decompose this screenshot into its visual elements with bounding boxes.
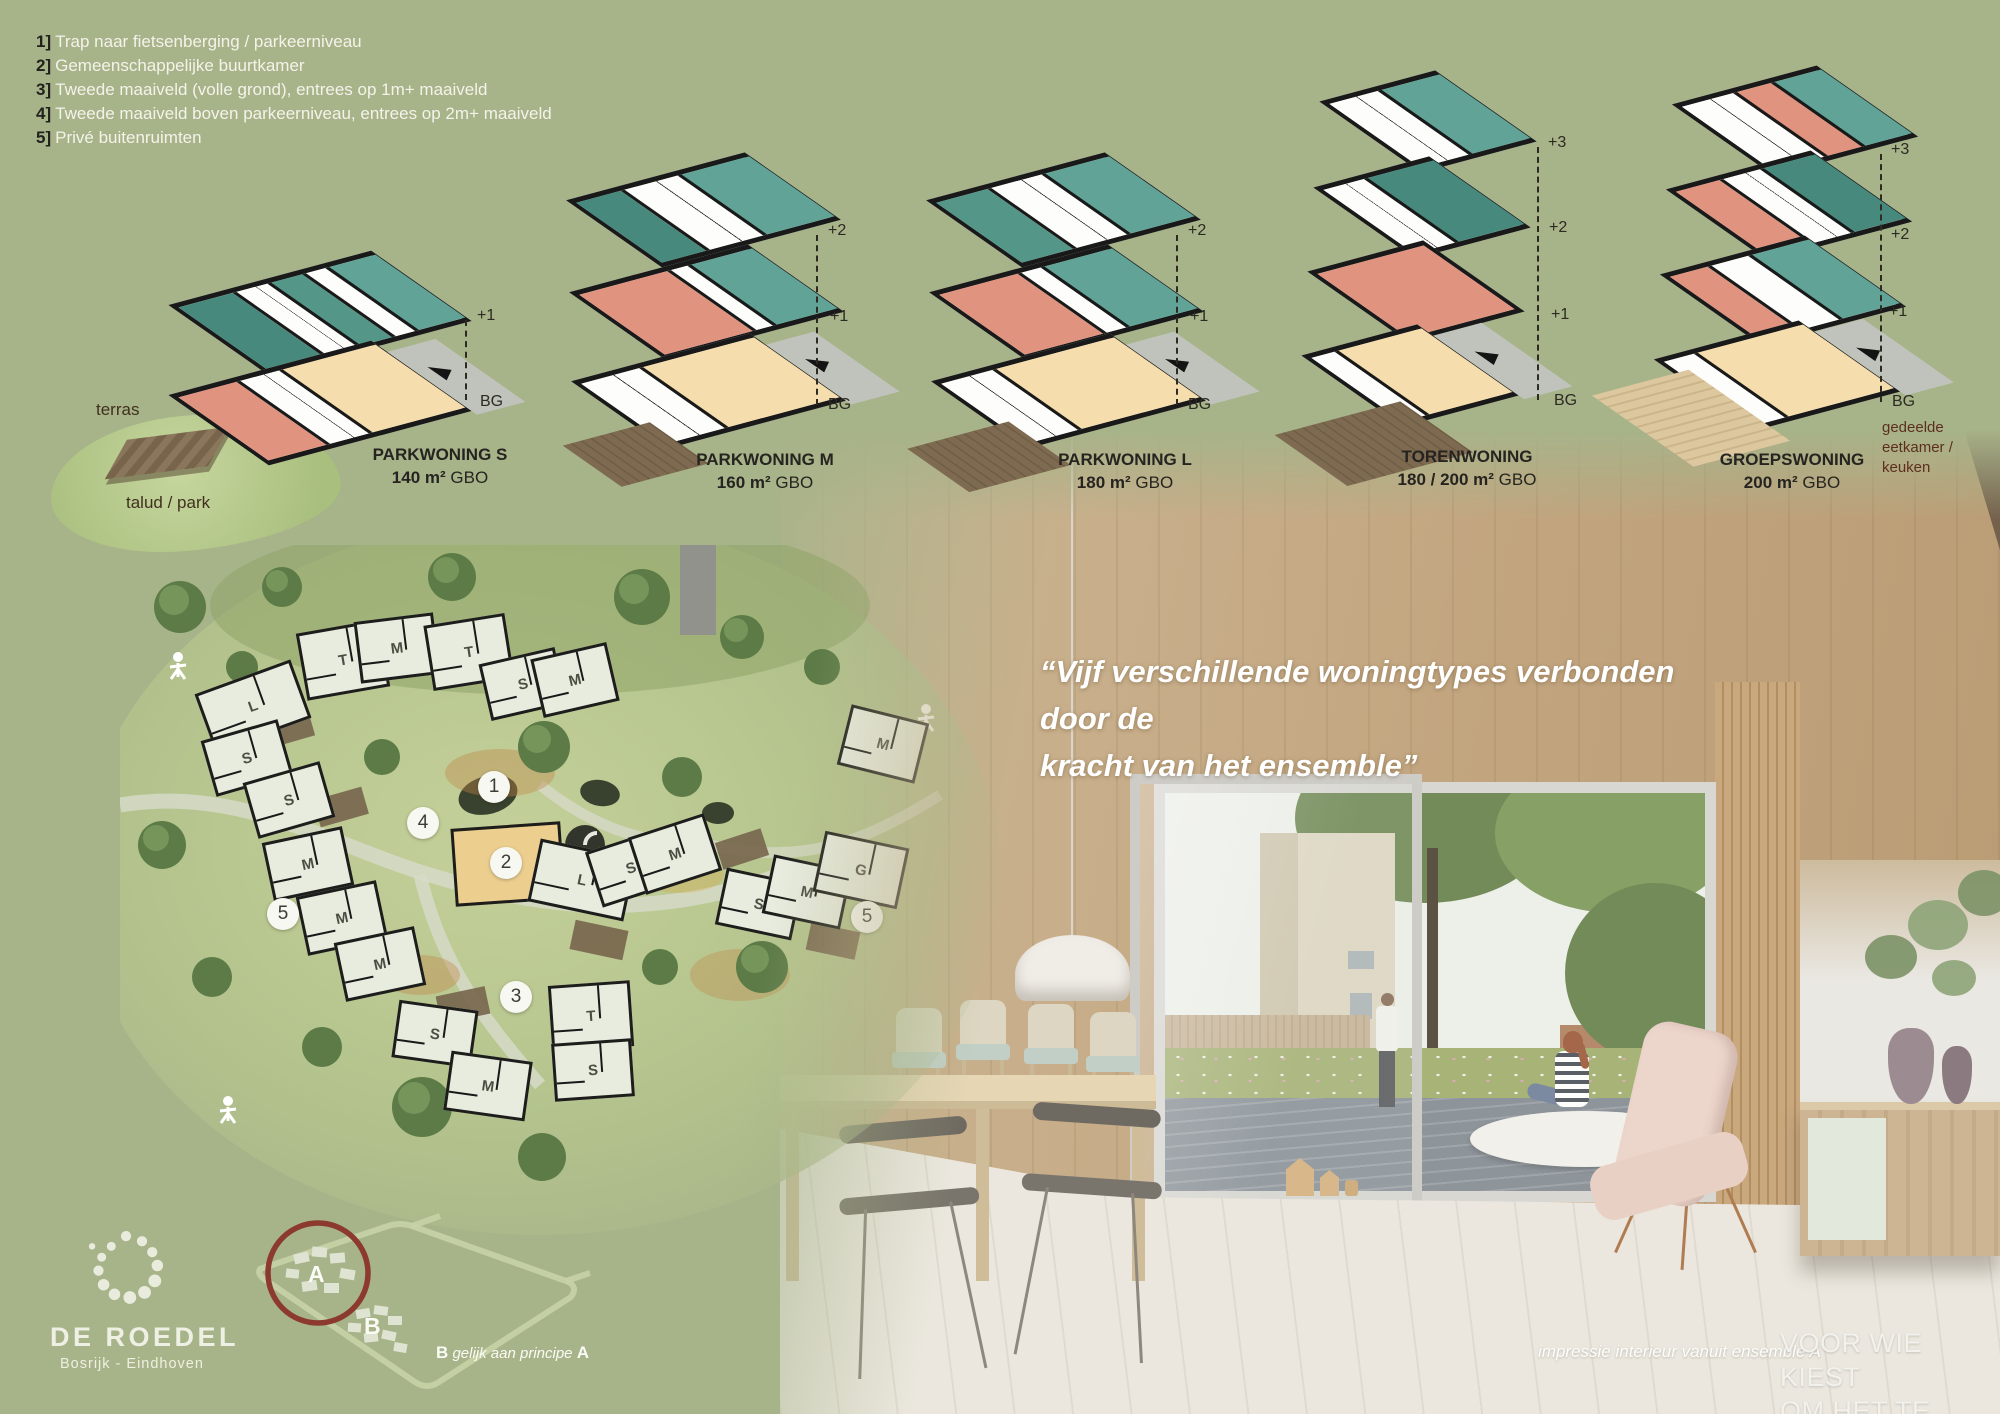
sideboard-door	[1808, 1118, 1886, 1240]
chair-back	[1090, 1012, 1136, 1062]
diagram-torenwoning: +3 +2 +1 BG TORENWONING 180 / 200 m² GBO	[1245, 55, 1640, 505]
site-marker: 5	[851, 901, 883, 933]
legend-number: 4]	[36, 104, 51, 123]
level-label: BG	[480, 393, 503, 411]
level-label: BG	[1892, 393, 1915, 411]
type-name: GROEPSWONING	[1720, 450, 1865, 469]
legend-text: Privé buitenruimten	[55, 128, 201, 147]
legend-text: Gemeenschappelijke buurtkamer	[55, 56, 304, 75]
level-label: +2	[1549, 219, 1567, 237]
legend-text: Tweede maaiveld (volle grond), entrees o…	[55, 80, 487, 99]
diagram-label: TORENWONING 180 / 200 m² GBO	[1357, 445, 1577, 491]
type-area: 180 m²	[1077, 473, 1131, 492]
chair-leg	[1131, 1193, 1143, 1363]
level-label: BG	[1188, 396, 1211, 414]
type-name: PARKWONING	[373, 445, 492, 464]
site-marker: 1	[478, 771, 510, 803]
chair-seat	[1021, 1173, 1162, 1200]
type-area: 160 m²	[717, 473, 771, 492]
quote-line: kracht van het ensemble”	[1040, 742, 1740, 789]
diagram-label: PARKWONING S 140 m² GBO	[340, 443, 540, 489]
area-unit: GBO	[1802, 473, 1840, 492]
legend-text: Trap naar fietsenberging / parkeerniveau	[55, 32, 362, 51]
area-unit: GBO	[1499, 470, 1537, 489]
diagram-parkwoning-s: +1 BG terras talud / park PARKWONING S 1…	[40, 185, 540, 560]
floorplate-plus2	[566, 152, 841, 267]
level-line	[465, 320, 467, 400]
legend-number: 5]	[36, 128, 51, 147]
diagram-label: GROEPSWONING 200 m² GBO	[1682, 448, 1902, 494]
legend-item: 1]Trap naar fietsenberging / parkeernive…	[36, 30, 552, 54]
level-line	[816, 235, 818, 405]
tagline-line: VOOR WIE KIEST	[1780, 1326, 2000, 1394]
floorplate-plus2	[926, 152, 1201, 267]
tagline-line: OM HET TE DOEN.	[1780, 1394, 2000, 1414]
legend-number: 3]	[36, 80, 51, 99]
type-size: L	[1182, 450, 1192, 469]
legend-number: 2]	[36, 56, 51, 75]
site-marker: 4	[407, 807, 439, 839]
level-label: +2	[1188, 222, 1206, 240]
area-unit: GBO	[450, 468, 488, 487]
diagram-groepswoning: +3 +2 +1 BG gedeelde eetkamer / keuken G…	[1630, 50, 2000, 515]
quote: “Vijf verschillende woningtypes verbonde…	[1040, 648, 1740, 789]
quote-line: “Vijf verschillende woningtypes verbonde…	[1040, 648, 1740, 742]
logo-subtitle: Bosrijk - Eindhoven	[60, 1356, 204, 1372]
toy-block	[1345, 1180, 1358, 1196]
type-size: S	[496, 445, 507, 464]
type-name: PARKWONING	[696, 450, 815, 469]
talud-label: talud / park	[126, 493, 210, 513]
floorplate-bg	[571, 333, 846, 448]
tagline: VOOR WIE KIEST OM HET TE DOEN.	[1780, 1326, 2000, 1414]
site-plan: LTMTSMMSSMMMLSMSMGSMTS 123455	[120, 545, 1020, 1245]
level-label: +3	[1891, 141, 1909, 159]
floorplate-bg	[931, 333, 1206, 448]
cluster-b-label: B	[364, 1313, 381, 1340]
diagram-parkwoning-l: +2 +1 BG PARKWONING L 180 m² GBO	[880, 140, 1260, 520]
plant-leaves	[1908, 900, 1968, 950]
diagram-label: PARKWONING L 180 m² GBO	[1015, 448, 1235, 494]
level-label: BG	[1554, 392, 1577, 410]
legend: 1]Trap naar fietsenberging / parkeernive…	[36, 30, 552, 150]
level-label: +1	[830, 308, 848, 326]
level-label: +2	[828, 222, 846, 240]
level-label: BG	[828, 396, 851, 414]
diagram-parkwoning-m: +2 +1 BG PARKWONING M 160 m² GBO	[520, 140, 900, 520]
diagram-label: PARKWONING M 160 m² GBO	[655, 448, 875, 494]
site-markers-layer: 123455	[120, 545, 1020, 1245]
level-line	[1537, 147, 1539, 400]
type-area: 200 m²	[1744, 473, 1798, 492]
site-key-map: A B B gelijk aan principe A	[238, 1213, 598, 1398]
chair-seat	[1086, 1056, 1140, 1072]
site-marker: 3	[500, 981, 532, 1013]
area-unit: GBO	[775, 473, 813, 492]
type-name: PARKWONING	[1058, 450, 1177, 469]
caption-b: B	[436, 1343, 448, 1362]
legend-item: 4]Tweede maaiveld boven parkeerniveau, e…	[36, 102, 552, 126]
site-marker: 5	[267, 898, 299, 930]
legend-item: 2]Gemeenschappelijke buurtkamer	[36, 54, 552, 78]
type-name: TORENWONING	[1402, 447, 1533, 466]
level-label: +1	[1889, 303, 1907, 321]
floorplate-bg	[1301, 324, 1518, 426]
cluster-a-label: A	[308, 1261, 325, 1288]
caption-a: A	[577, 1343, 589, 1362]
level-line	[1176, 235, 1178, 405]
level-label: +2	[1891, 226, 1909, 244]
sideboard	[1800, 1102, 2000, 1256]
area-unit: GBO	[1135, 473, 1173, 492]
level-label: +1	[477, 307, 495, 325]
logo-mark	[78, 1222, 174, 1318]
type-area: 140 m²	[392, 468, 446, 487]
legend-number: 1]	[36, 32, 51, 51]
type-area: 180 / 200 m²	[1398, 470, 1494, 489]
site-key-graphic	[238, 1213, 598, 1398]
level-label: +3	[1548, 134, 1566, 152]
foreground-chair	[1009, 1101, 1177, 1381]
level-label: +1	[1551, 306, 1569, 324]
legend-item: 3]Tweede maaiveld (volle grond), entrees…	[36, 78, 552, 102]
child-figure	[1535, 1031, 1615, 1133]
legend-text: Tweede maaiveld boven parkeerniveau, ent…	[55, 104, 552, 123]
terras-label: terras	[96, 400, 139, 420]
level-line	[1880, 154, 1882, 402]
plant-leaves	[1865, 935, 1917, 979]
plant-leaves	[1932, 960, 1976, 996]
type-size: M	[820, 450, 834, 469]
interior-caption: impressie interieur vanuit ensemble A	[1538, 1342, 1821, 1362]
caption-text: gelijk aan principe	[452, 1345, 572, 1362]
chair-back	[1028, 1004, 1074, 1054]
site-key-caption: B gelijk aan principe A	[436, 1343, 589, 1363]
site-marker: 2	[490, 847, 522, 879]
logo-title: DE ROEDEL	[50, 1322, 239, 1353]
legend-item: 5]Privé buitenruimten	[36, 126, 552, 150]
level-label: +1	[1190, 308, 1208, 326]
chair-seat	[1024, 1048, 1078, 1064]
presentation-board: 1]Trap naar fietsenberging / parkeernive…	[0, 0, 2000, 1414]
floorplate-bg	[1654, 321, 1900, 431]
